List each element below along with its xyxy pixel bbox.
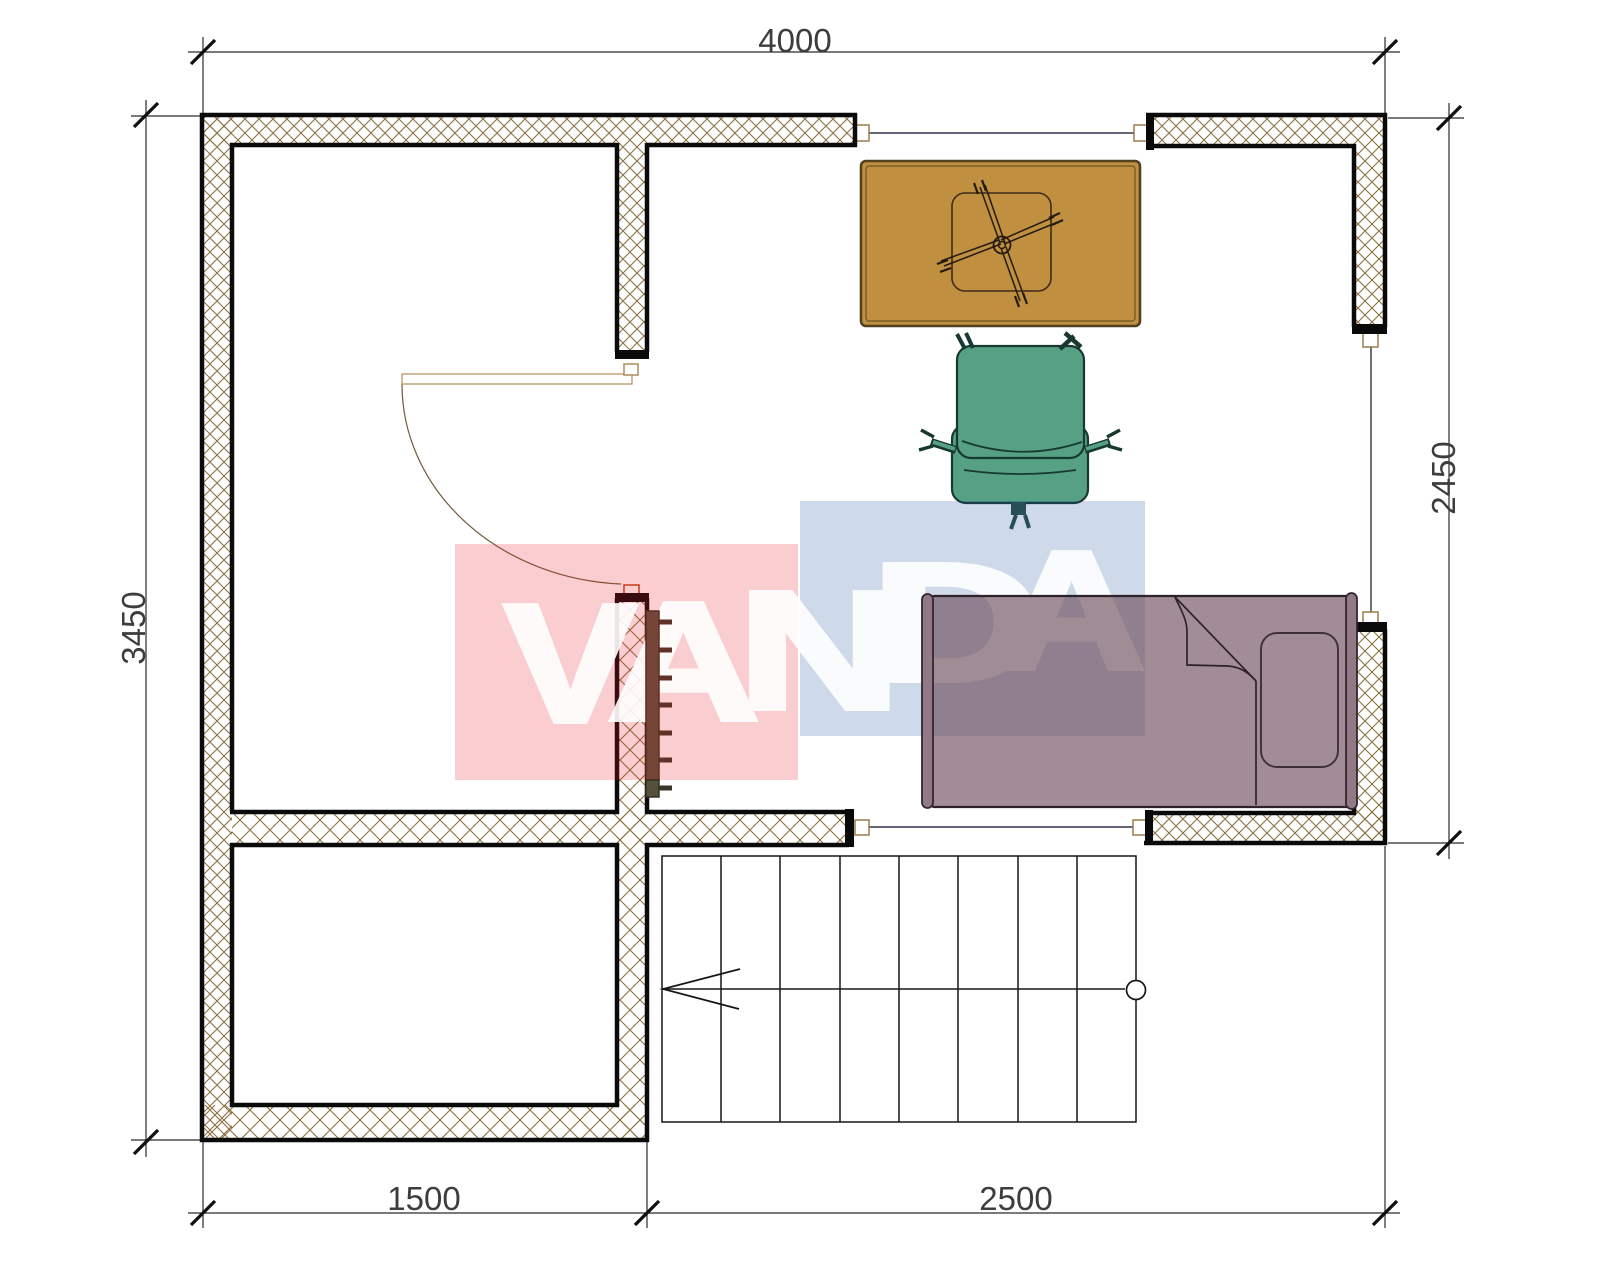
svg-text:2450: 2450 [1425,441,1462,514]
svg-text:A: A [608,569,759,755]
svg-text:2500: 2500 [979,1180,1052,1217]
svg-text:4000: 4000 [758,22,831,59]
svg-text:1500: 1500 [387,1180,460,1217]
svg-text:3450: 3450 [115,591,152,664]
